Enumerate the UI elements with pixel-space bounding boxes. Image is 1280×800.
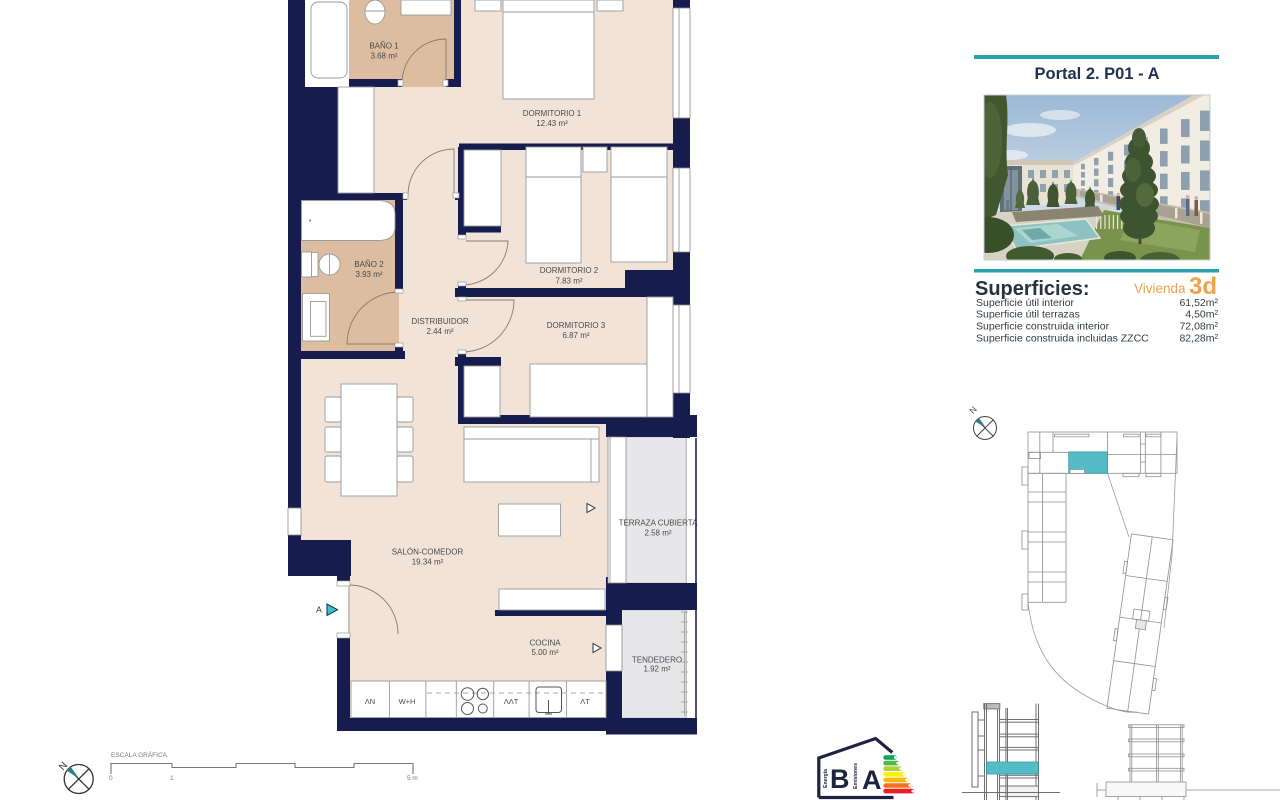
svg-text:3.68 m²: 3.68 m²	[370, 52, 397, 61]
svg-text:DORMITORIO 3: DORMITORIO 3	[547, 321, 606, 330]
svg-text:72,08m²: 72,08m²	[1179, 321, 1218, 333]
svg-text:DORMITORIO 2: DORMITORIO 2	[540, 266, 599, 275]
svg-text:DORMITORIO 1: DORMITORIO 1	[523, 109, 582, 118]
svg-text:A: A	[316, 605, 322, 615]
svg-text:W+H: W+H	[399, 697, 416, 706]
svg-text:Energía: Energía	[823, 769, 829, 788]
svg-text:Portal 2. P01 - A: Portal 2. P01 - A	[1034, 65, 1159, 83]
svg-text:TENDEDERO: TENDEDERO	[632, 656, 682, 665]
svg-text:BAÑO 2: BAÑO 2	[354, 260, 384, 269]
svg-text:6.87 m²: 6.87 m²	[562, 331, 589, 340]
svg-text:12.43 m²: 12.43 m²	[536, 119, 568, 128]
svg-text:ESCALA GRÁFICA: ESCALA GRÁFICA	[111, 750, 168, 759]
svg-text:82,28m²: 82,28m²	[1179, 333, 1218, 345]
svg-text:61,52m²: 61,52m²	[1179, 297, 1218, 309]
svg-text:1: 1	[170, 775, 174, 782]
svg-text:COCINA: COCINA	[529, 639, 561, 648]
svg-text:2.44 m²: 2.44 m²	[426, 327, 453, 336]
svg-text:5.00 m²: 5.00 m²	[531, 648, 558, 657]
svg-text:Vivienda: Vivienda	[1134, 281, 1186, 296]
svg-text:4,50m²: 4,50m²	[1185, 309, 1218, 321]
svg-text:3.93 m²: 3.93 m²	[355, 270, 382, 279]
svg-text:19.34 m²: 19.34 m²	[412, 558, 444, 567]
svg-text:B: B	[830, 764, 850, 794]
svg-text:A: A	[862, 765, 882, 795]
svg-text:7.83 m²: 7.83 m²	[555, 277, 582, 286]
svg-text:SALÓN-COMEDOR: SALÓN-COMEDOR	[392, 548, 464, 557]
svg-text:Superficie construida interior: Superficie construida interior	[976, 321, 1110, 333]
svg-text:Emisiones: Emisiones	[853, 763, 859, 789]
svg-text:1.92 m²: 1.92 m²	[643, 665, 670, 674]
svg-text:Superficie útil terrazas: Superficie útil terrazas	[976, 309, 1080, 321]
svg-text:Superficie útil interior: Superficie útil interior	[976, 297, 1075, 309]
svg-text:2.58 m²: 2.58 m²	[644, 529, 671, 538]
svg-text:ΛT: ΛT	[580, 697, 590, 706]
svg-text:ΛN: ΛN	[365, 697, 375, 706]
svg-text:ΛΛT: ΛΛT	[504, 697, 519, 706]
svg-text:Superficie construida incluida: Superficie construida incluidas ZZCC	[976, 333, 1149, 345]
svg-text:BAÑO 1: BAÑO 1	[369, 42, 399, 51]
svg-text:TERRAZA CUBIERTA: TERRAZA CUBIERTA	[619, 519, 698, 528]
svg-text:DISTRIBUIDOR: DISTRIBUIDOR	[411, 317, 469, 326]
svg-text:5 m: 5 m	[407, 775, 418, 782]
svg-text:3d: 3d	[1189, 273, 1217, 300]
svg-text:0: 0	[109, 775, 113, 782]
